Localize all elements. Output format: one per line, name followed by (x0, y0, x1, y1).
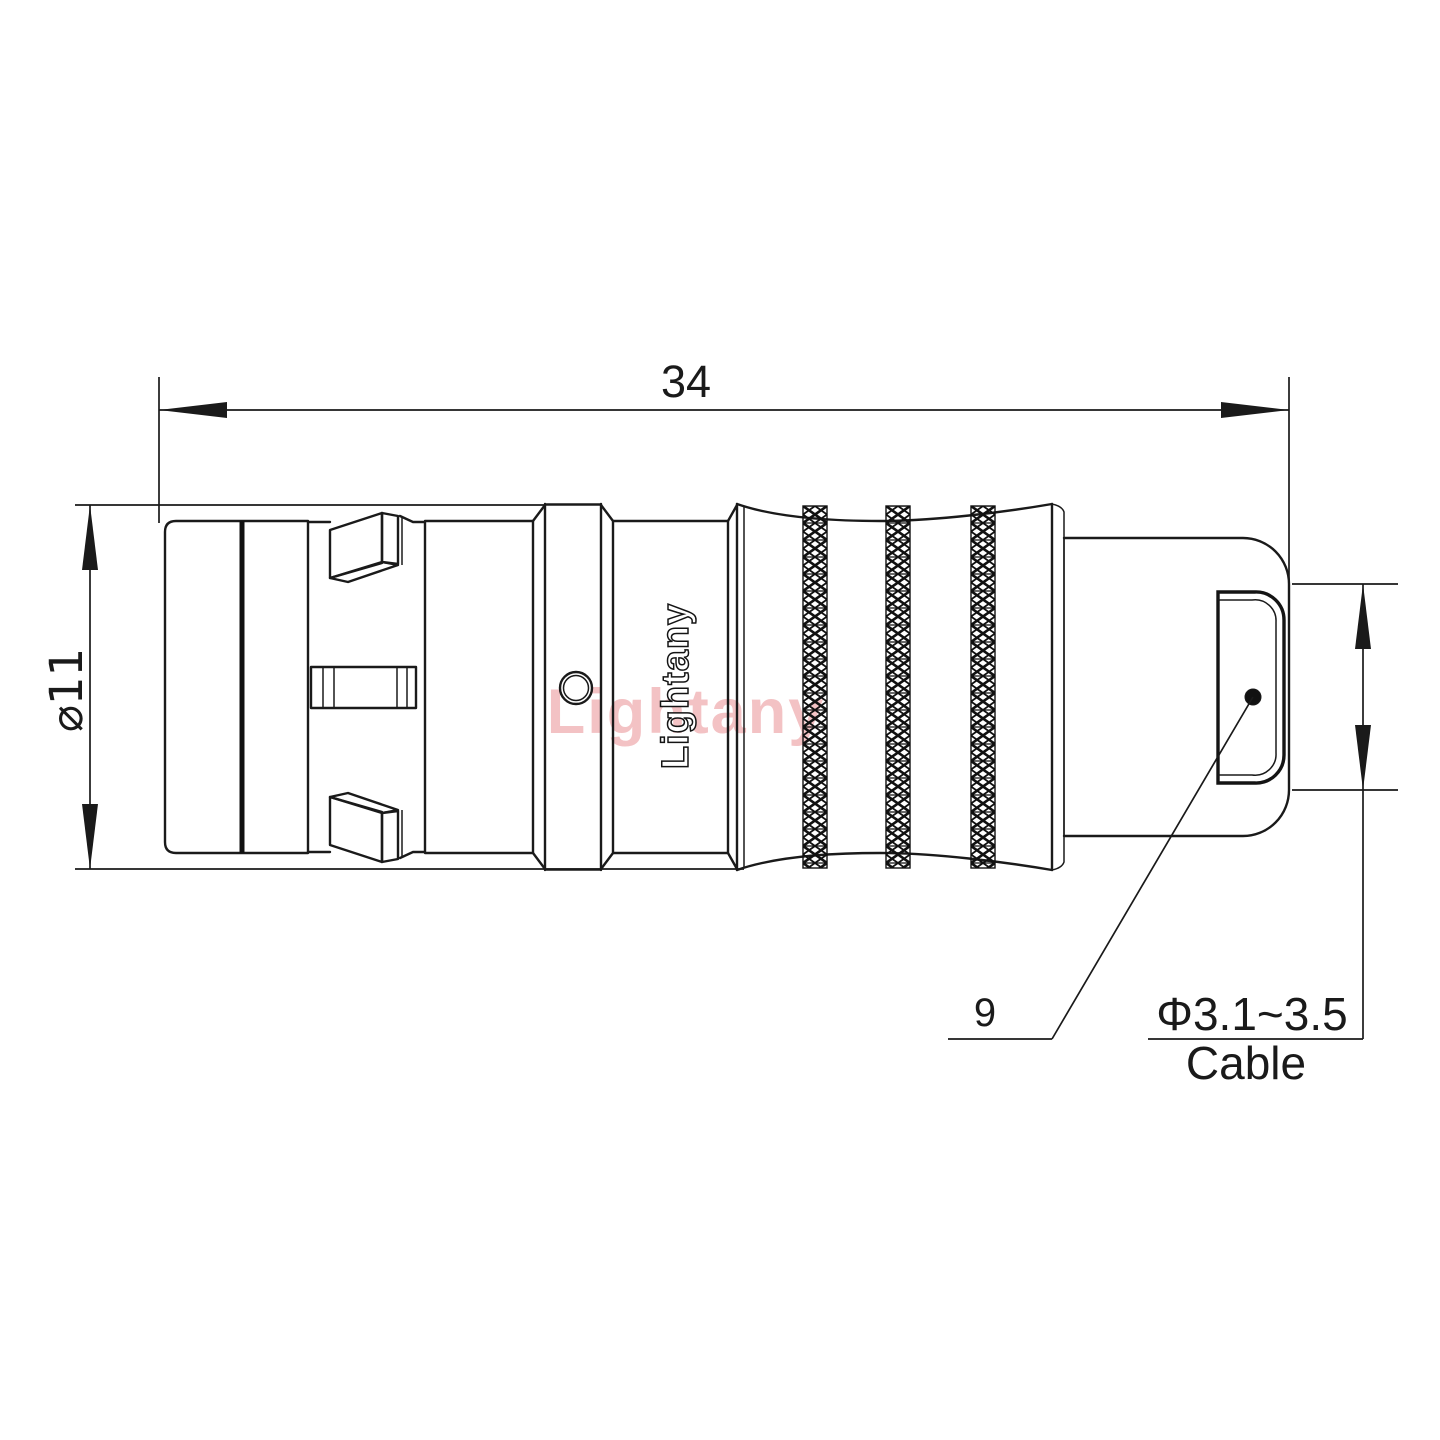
latch-carrier (308, 513, 425, 862)
knurl-band-3 (971, 506, 995, 868)
latch-tab-bottom (330, 793, 402, 862)
dim-boot-length-value: 9 (974, 991, 996, 1035)
cable-label: Cable (1186, 1037, 1306, 1089)
cable-boot (1064, 538, 1289, 836)
latch-tab-top (330, 513, 402, 582)
technical-drawing-page: Lightany (0, 0, 1440, 1440)
connector-body: Lightany (165, 504, 1289, 870)
cable-diameter-range: Φ3.1~3.5 (1156, 988, 1347, 1040)
connector-technical-drawing: Lightany (0, 0, 1440, 1440)
cable-entry-cup (1218, 592, 1284, 783)
knurl-band-1 (803, 506, 827, 868)
coupling-cap (165, 521, 308, 853)
dim-overall-length-value: 34 (661, 356, 711, 407)
logo-text: Lightany (655, 603, 697, 769)
locking-bar (311, 667, 416, 708)
barrel-front (425, 505, 545, 869)
dimension-overall-length: 34 (159, 356, 1289, 584)
knurl-band-2 (886, 506, 910, 868)
dim-body-diameter-value: ⌀11 (40, 648, 93, 732)
